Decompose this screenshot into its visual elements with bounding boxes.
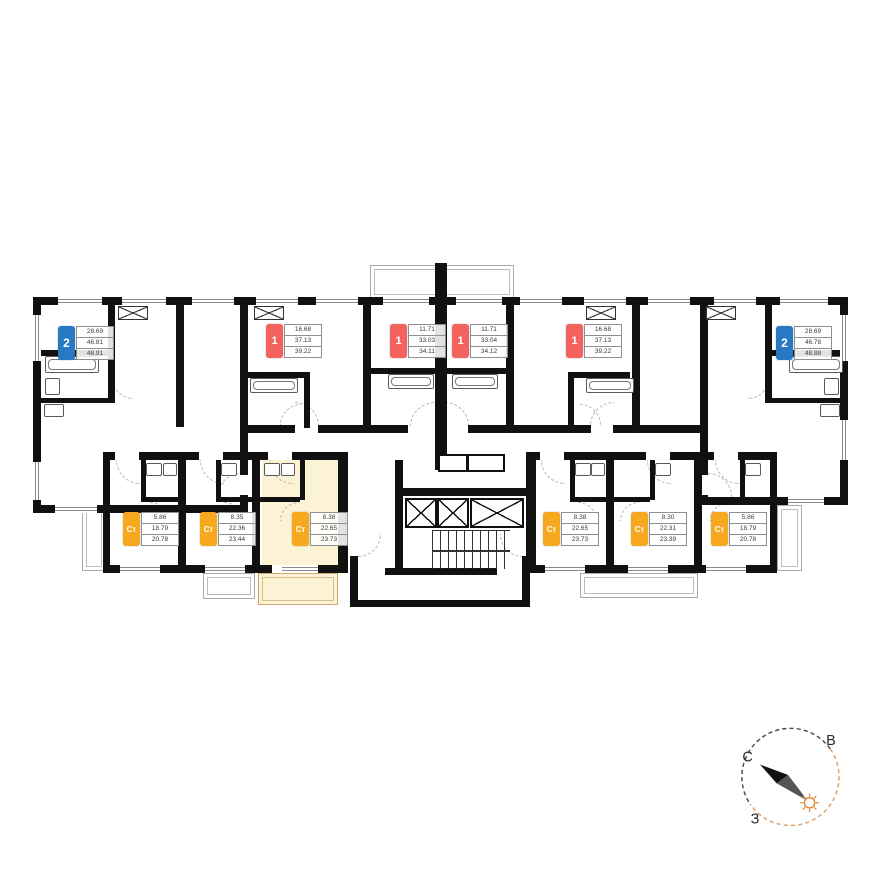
- wall-segment: [103, 565, 120, 573]
- wall-segment: [770, 452, 777, 573]
- wardrobe: [254, 306, 284, 320]
- wall-segment: [765, 398, 842, 403]
- window: [706, 565, 746, 573]
- wall-segment: [435, 263, 447, 307]
- fixture: [250, 378, 298, 393]
- wall-segment: [240, 425, 295, 433]
- wall-segment: [160, 565, 205, 573]
- fixture: [824, 378, 839, 395]
- unit-type-badge: Ст: [631, 512, 648, 546]
- unit-badge-1k-mid-left[interactable]: 1 11.7133.0334.11: [390, 324, 446, 358]
- window: [840, 315, 848, 361]
- staircase: [432, 530, 510, 569]
- door-arc: [541, 460, 565, 484]
- wall-segment: [176, 305, 184, 427]
- window: [520, 297, 562, 305]
- sun-icon: [800, 793, 819, 812]
- unit-type-badge: Ст: [292, 512, 309, 546]
- elevator-shaft: [437, 498, 469, 528]
- wall-segment: [318, 565, 348, 573]
- unit-area-value: 23.73: [310, 534, 348, 546]
- unit-badge-2k-left[interactable]: 2 28.6946.8148.91: [58, 326, 114, 360]
- unit-type-badge: Ст: [543, 512, 560, 546]
- fixture: [452, 374, 498, 389]
- unit-type-badge: 1: [566, 324, 583, 358]
- balcony-outline: [580, 573, 698, 598]
- wardrobe: [118, 306, 148, 320]
- wall-segment: [395, 488, 536, 496]
- elevator-shaft: [405, 498, 437, 528]
- unit-badge-1k-mid-right[interactable]: 1 11.7133.0434.12: [452, 324, 508, 358]
- wall-segment: [668, 565, 706, 573]
- fixture: [655, 463, 671, 476]
- fixture: [281, 463, 295, 476]
- wall-segment: [670, 452, 714, 460]
- wall-segment: [385, 568, 497, 575]
- unit-badge-st-1[interactable]: Ст 5.8618.7920.78: [123, 512, 179, 546]
- wall-segment: [240, 305, 248, 433]
- duct-shaft: [438, 454, 468, 472]
- compass: С В З: [730, 718, 854, 842]
- door-arc: [116, 460, 140, 484]
- wall-segment: [702, 497, 740, 502]
- wall-segment: [564, 452, 646, 460]
- unit-type-badge: 1: [452, 324, 469, 358]
- compass-west-label: З: [751, 811, 760, 827]
- unit-type-badge: 1: [266, 324, 283, 358]
- window: [780, 297, 828, 305]
- window: [383, 297, 429, 305]
- duct-shaft: [467, 454, 505, 472]
- wall-segment: [260, 497, 300, 502]
- unit-area-value: 34.12: [470, 346, 508, 358]
- wall-segment: [614, 497, 650, 502]
- wall-segment: [216, 497, 252, 502]
- door-arc: [280, 404, 301, 425]
- unit-area-value: 39.22: [584, 346, 622, 358]
- wall-segment: [108, 383, 115, 403]
- window: [316, 297, 358, 305]
- unit-area-value: 39.22: [284, 346, 322, 358]
- wall-segment: [613, 425, 708, 433]
- floor-plan: 2 28.6946.8148.91 1 16.6837.1339.22 1 11…: [0, 0, 880, 880]
- unit-area-value: 20.78: [729, 534, 767, 546]
- window: [192, 297, 234, 305]
- window: [256, 297, 298, 305]
- balcony-outline: [203, 573, 255, 599]
- window: [545, 565, 585, 573]
- unit-type-badge: Ст: [711, 512, 728, 546]
- unit-area-value: 48.88: [794, 348, 832, 360]
- wall-segment: [570, 497, 606, 502]
- fixture: [820, 404, 840, 417]
- window: [122, 297, 166, 305]
- unit-type-badge: 2: [58, 326, 75, 360]
- fixture: [591, 463, 605, 476]
- window: [714, 297, 756, 305]
- unit-badge-1k-left[interactable]: 1 16.6837.1339.22: [266, 324, 322, 358]
- unit-badge-st-2[interactable]: Ст 8.3522.3623.44: [200, 512, 256, 546]
- unit-area-value: 23.44: [218, 534, 256, 546]
- selected-unit-balcony[interactable]: [258, 573, 338, 605]
- wall-segment: [700, 305, 708, 427]
- wall-segment: [746, 565, 777, 573]
- window: [628, 565, 668, 573]
- unit-type-badge: 2: [776, 326, 793, 360]
- unit-type-badge: 1: [390, 324, 407, 358]
- fixture: [586, 378, 634, 393]
- door-arc: [445, 402, 469, 426]
- wall-segment: [103, 452, 110, 573]
- wall-segment: [765, 383, 772, 403]
- wall-segment: [606, 452, 614, 573]
- fixture: [221, 463, 237, 476]
- fixture: [45, 378, 60, 395]
- wall-segment: [318, 425, 408, 433]
- compass-rose: С В З: [730, 718, 854, 842]
- unit-area-value: 23.39: [649, 534, 687, 546]
- unit-type-badge: Ст: [200, 512, 217, 546]
- fixture: [163, 463, 177, 476]
- wardrobe: [706, 306, 736, 320]
- wall-segment: [363, 305, 371, 427]
- fixture: [44, 404, 64, 417]
- wall-segment: [568, 372, 574, 428]
- elevator-shaft: [470, 498, 524, 528]
- window: [456, 297, 502, 305]
- window: [840, 420, 848, 460]
- wall-segment: [178, 452, 186, 573]
- fixture: [264, 463, 280, 476]
- fixture: [146, 463, 162, 476]
- wall-segment: [468, 425, 591, 433]
- wall-segment: [765, 305, 772, 383]
- wall-segment: [141, 497, 178, 502]
- unit-type-badge: Ст: [123, 512, 140, 546]
- window: [33, 315, 41, 361]
- window: [58, 297, 102, 305]
- unit-badge-st-5[interactable]: Ст 8.3022.3123.39: [631, 512, 687, 546]
- window: [33, 462, 41, 500]
- window: [788, 497, 824, 505]
- wall-segment: [350, 600, 530, 607]
- unit-badge-st-3-selected[interactable]: Ст 8.3822.6523.73: [292, 512, 348, 546]
- wall-segment: [300, 460, 305, 500]
- wall-segment: [526, 452, 536, 573]
- wall-segment: [694, 452, 702, 573]
- window: [648, 297, 690, 305]
- window: [584, 297, 626, 305]
- door-arc: [410, 402, 436, 426]
- door-arc: [112, 378, 133, 399]
- unit-badge-st-4[interactable]: Ст 8.3822.6523.73: [543, 512, 599, 546]
- compass-east-label: В: [826, 733, 836, 749]
- window: [55, 505, 97, 513]
- compass-north-label: С: [742, 749, 752, 765]
- wall-segment: [395, 460, 403, 570]
- fixture: [745, 463, 761, 476]
- unit-area-value: 20.78: [141, 534, 179, 546]
- fixture: [575, 463, 591, 476]
- window: [282, 565, 318, 573]
- balcony-outline: [777, 505, 802, 571]
- unit-area-value: 48.91: [76, 348, 114, 360]
- wall-segment: [223, 452, 268, 460]
- wall-segment: [139, 452, 199, 460]
- window: [205, 565, 245, 573]
- door-arc: [358, 534, 381, 557]
- wall-segment: [304, 372, 310, 428]
- wall-segment: [585, 565, 628, 573]
- window: [120, 565, 160, 573]
- unit-badge-st-6[interactable]: Ст 5.8618.7920.78: [711, 512, 767, 546]
- unit-area-value: 34.11: [408, 346, 446, 358]
- unit-area-value: 23.73: [561, 534, 599, 546]
- fixture: [388, 374, 434, 389]
- wardrobe: [586, 306, 616, 320]
- wall-segment: [41, 398, 115, 403]
- wall-segment: [245, 565, 272, 573]
- wall-segment: [632, 305, 640, 427]
- unit-badge-2k-right[interactable]: 2 28.6946.7848.88: [776, 326, 832, 360]
- unit-badge-1k-right[interactable]: 1 16.6837.1339.22: [566, 324, 622, 358]
